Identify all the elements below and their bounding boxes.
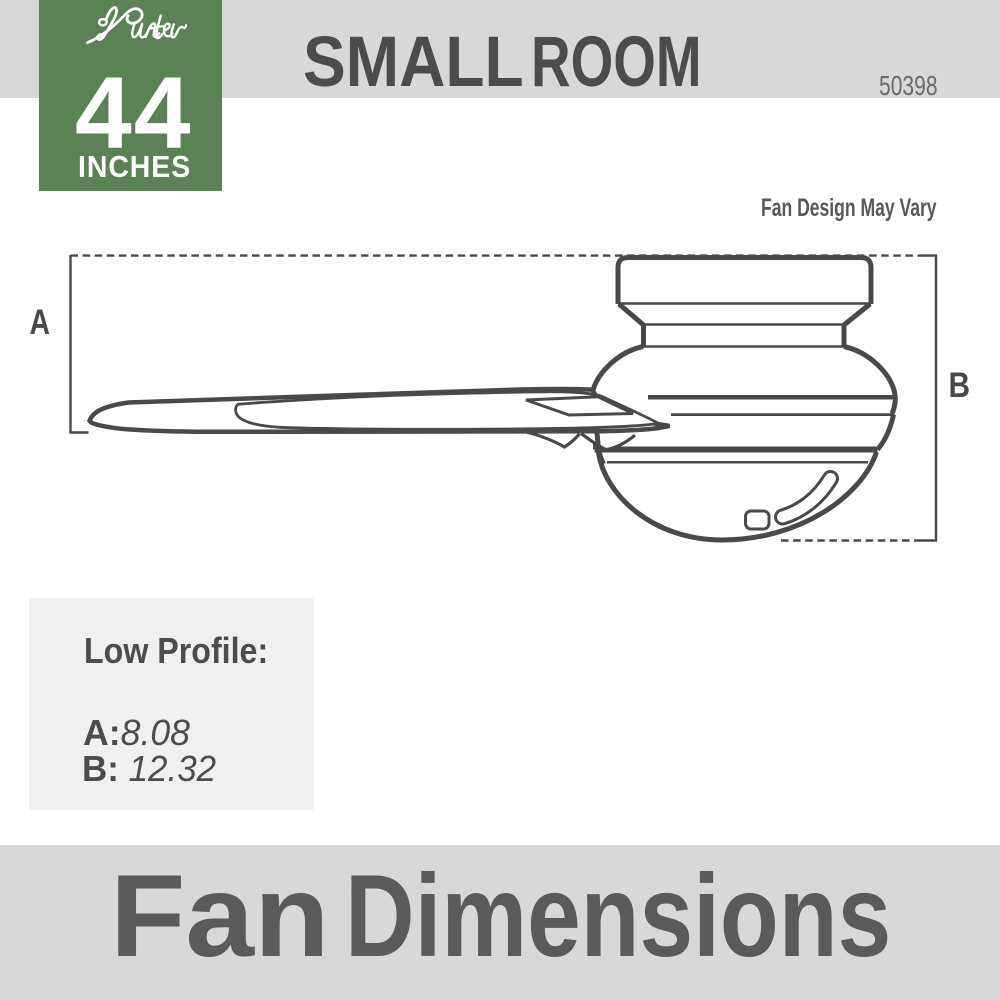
svg-text:B: B [949, 365, 971, 405]
svg-text:A: A [30, 302, 51, 342]
